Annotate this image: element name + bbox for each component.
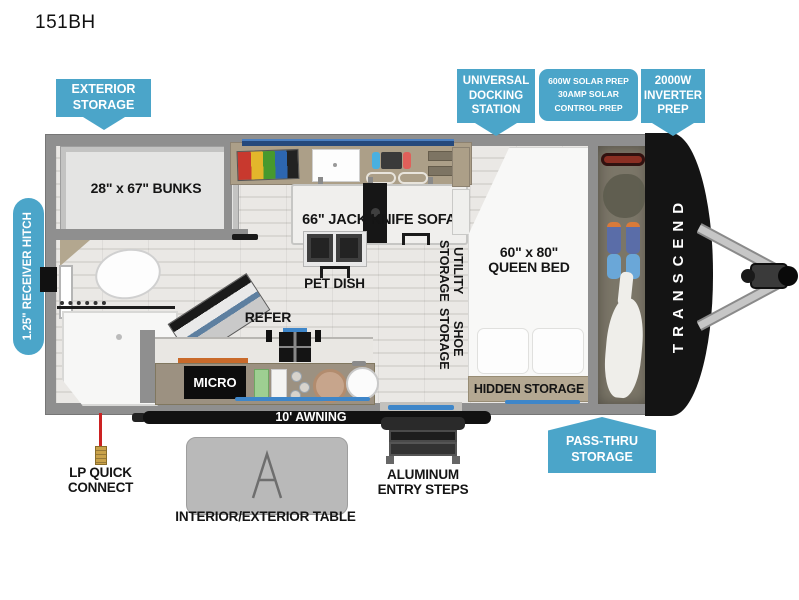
kitchen-wall-column [140, 330, 155, 403]
table-leg-icon [243, 450, 291, 502]
wall-passthru-divider [588, 146, 598, 404]
steps-label: ALUMINUM ENTRY STEPS [368, 468, 478, 498]
faucet [352, 361, 366, 366]
bed-led-strip [505, 400, 580, 404]
lp-fitting [95, 446, 107, 465]
bunks-label: 28" x 67" BUNKS [66, 181, 226, 196]
hidden-storage-label: HIDDEN STORAGE [474, 382, 584, 396]
cutting-board-white [271, 369, 287, 400]
micro-label: MICRO [193, 375, 236, 390]
sneaker-right [626, 222, 640, 254]
sneaker-left [607, 222, 621, 254]
wall-below-bunks [56, 229, 248, 240]
callout-solar-prep: 600W SOLAR PREP 30AMP SOLAR CONTROL PREP [539, 69, 638, 121]
game-storage [236, 149, 299, 181]
bathroom-window [59, 265, 73, 319]
step-foot-left [386, 456, 394, 464]
hidden-storage: HIDDEN STORAGE [468, 376, 590, 402]
controller-pill-right [398, 172, 428, 184]
page-title: 151BH [35, 12, 96, 34]
utility-storage-label: UTILITY STORAGE [436, 236, 464, 306]
tv-logo-dot [333, 163, 337, 167]
bunk-handle [232, 234, 258, 240]
queen-bed-label: 60" x 80" QUEEN BED [470, 245, 588, 276]
pet-dish-left [307, 234, 333, 262]
counter-knob-left [266, 330, 272, 342]
callout-pass-thru: PASS-THRU STORAGE [548, 417, 656, 473]
refer-label: REFER [238, 310, 298, 325]
boot-left [607, 254, 621, 279]
pillow-right [532, 328, 584, 374]
pillow-left [477, 328, 529, 374]
gear-bag [603, 174, 645, 218]
floorplan-page: 151BH 28" x 67" BUNKS 66" JACK KNIFE SOF… [0, 0, 799, 600]
sink [346, 367, 379, 400]
glass-2 [299, 382, 310, 393]
table-label: INTERIOR/EXTERIOR TABLE [148, 510, 383, 525]
brand-label: TRANSCEND [671, 196, 688, 353]
table-mount-sofa [402, 233, 430, 245]
entry-step-2 [389, 430, 457, 442]
step-foot-right [452, 456, 460, 464]
lp-label: LP QUICK CONNECT [58, 466, 143, 496]
lp-hose [99, 413, 102, 449]
shower-curtain [60, 301, 106, 305]
awning-label: 10' AWNING [236, 411, 386, 424]
receiver-hitch-port [40, 267, 57, 292]
sofa-label: 66" JACK KNIFE SOFA [298, 213, 460, 229]
receiver-hitch-text: 1.25" RECEIVER HITCH [21, 212, 35, 340]
shower-drain [116, 334, 122, 340]
glass-1 [291, 371, 302, 382]
game-controller-right [403, 152, 411, 169]
window-strip [242, 139, 454, 146]
counter-led-strip [235, 397, 370, 401]
pet-dish-label: PET DISH [292, 277, 377, 292]
counter-knob-right [315, 330, 321, 342]
callout-inverter-prep: 2000W INVERTER PREP [641, 69, 705, 123]
callout-exterior-storage: EXTERIOR STORAGE [56, 79, 151, 117]
microwave: MICRO [184, 366, 246, 399]
shoe-storage-label: SHOE STORAGE [436, 304, 464, 374]
tennis-racket [601, 153, 645, 166]
bed-nightstand [452, 147, 470, 187]
towel-bar [178, 358, 248, 363]
entry-door-step-strip [388, 405, 454, 410]
stove [279, 332, 311, 362]
pet-dish-right [336, 234, 362, 262]
bed-side-cabinet [452, 189, 470, 235]
game-console [381, 152, 402, 169]
portable-table [186, 437, 348, 515]
game-controller-left [372, 152, 380, 169]
cutting-board-green [254, 369, 269, 400]
callout-universal-docking: UNIVERSAL DOCKING STATION [457, 69, 535, 123]
shower-curtain-rod [57, 306, 175, 309]
entry-step-3 [389, 442, 457, 456]
hitch-aframe [697, 222, 799, 334]
entry-step-1 [381, 417, 465, 430]
